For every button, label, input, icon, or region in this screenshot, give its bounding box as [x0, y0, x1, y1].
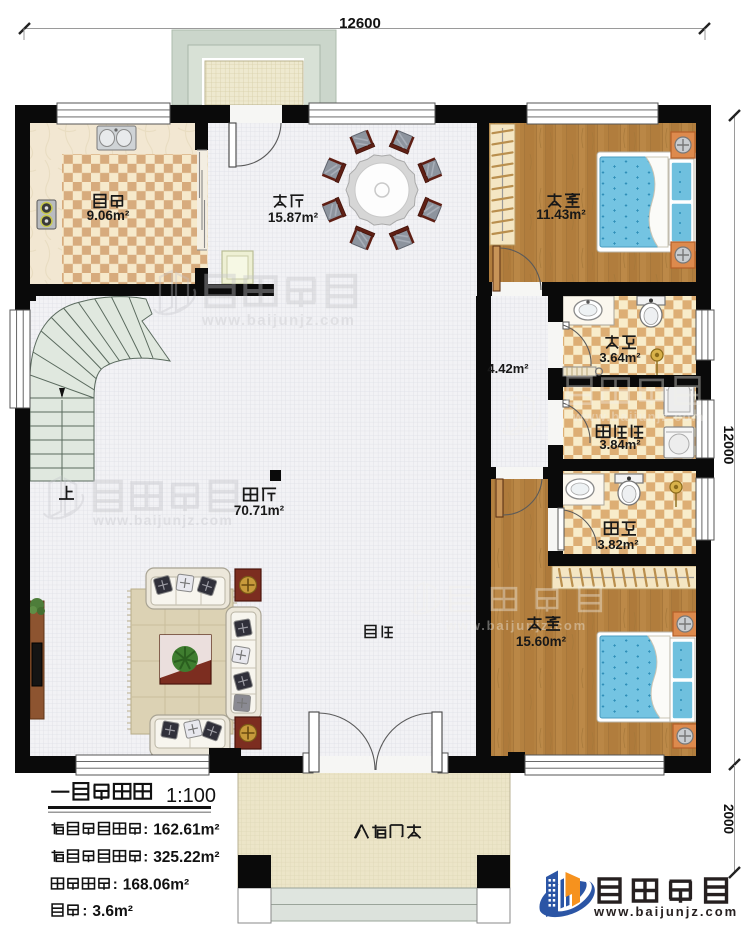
svg-text:11.43m²: 11.43m²	[536, 207, 586, 222]
svg-text:www.baijunjz.com: www.baijunjz.com	[445, 618, 587, 633]
svg-text:70.71m²: 70.71m²	[234, 503, 285, 518]
svg-text::: :	[143, 821, 148, 838]
svg-text:12600: 12600	[339, 15, 381, 32]
svg-text:15.60m²: 15.60m²	[516, 634, 567, 649]
svg-text:162.61m²: 162.61m²	[153, 822, 219, 839]
svg-text:3.6m²: 3.6m²	[92, 903, 132, 920]
svg-text:1:100: 1:100	[166, 785, 216, 807]
svg-text:325.22m²: 325.22m²	[153, 849, 219, 866]
svg-text:www.baijunjz.com: www.baijunjz.com	[593, 904, 738, 919]
svg-text:2000: 2000	[721, 804, 736, 834]
svg-text::: :	[143, 849, 148, 866]
svg-text:www.baijunjz.com: www.baijunjz.com	[572, 409, 704, 424]
svg-text::: :	[82, 903, 87, 920]
svg-text:9.06m²: 9.06m²	[87, 208, 130, 223]
svg-text:4.42m²: 4.42m²	[487, 361, 529, 376]
svg-text:3.64m²: 3.64m²	[599, 350, 641, 365]
svg-text:3.82m²: 3.82m²	[597, 537, 639, 552]
svg-text:15.87m²: 15.87m²	[268, 210, 319, 225]
svg-text:www.baijunjz.com: www.baijunjz.com	[201, 312, 355, 329]
svg-text::: :	[113, 876, 118, 893]
svg-text:12000: 12000	[721, 426, 737, 465]
svg-text:168.06m²: 168.06m²	[123, 877, 189, 894]
svg-text:www.baijunjz.com: www.baijunjz.com	[92, 512, 233, 528]
svg-text:3.84m²: 3.84m²	[599, 437, 641, 452]
